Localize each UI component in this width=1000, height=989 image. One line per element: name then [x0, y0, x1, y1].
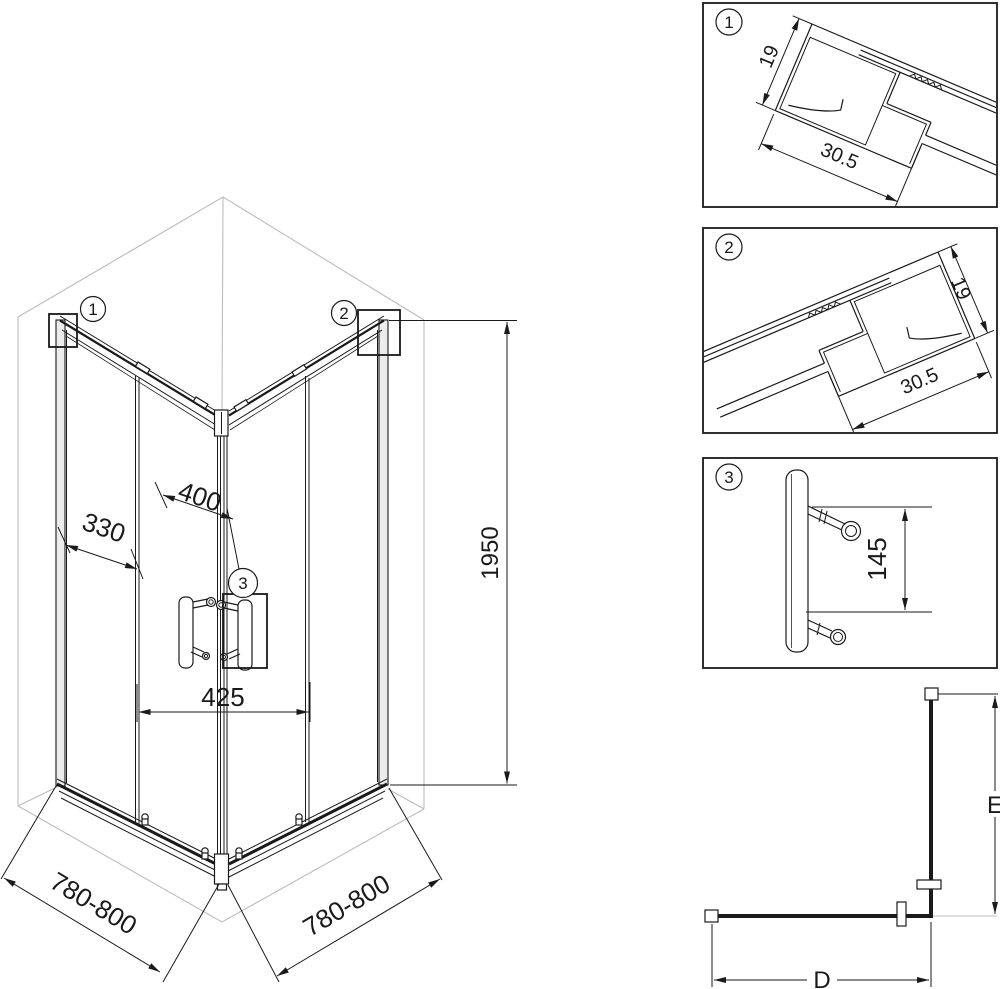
detail-2-number: 2 — [724, 238, 733, 257]
drawing-canvas: 330 400 425 1950 780-800 — [0, 0, 1000, 989]
plan-handle-front-wall — [897, 902, 906, 926]
main-isometric-view: 330 400 425 1950 780-800 — [1, 197, 517, 982]
plan-handle-right-wall — [917, 880, 941, 889]
dimension-D: D — [712, 922, 931, 989]
door-hanger — [292, 365, 307, 377]
dimension-E: E — [938, 694, 1000, 914]
detail-panel-1: 1 19 30.5 — [703, 3, 1000, 254]
dim-width-left-label: 780-800 — [45, 866, 142, 941]
callout-2-number: 2 — [339, 304, 348, 323]
detail-3-number: 3 — [724, 468, 733, 487]
dimension-400: 400 — [155, 475, 239, 569]
right-wall-profile — [378, 320, 389, 785]
wall-bracket-top — [925, 688, 938, 700]
plan-view: E D — [705, 688, 1000, 989]
dim-330-label: 330 — [79, 506, 130, 548]
dim-width-right-label: 780-800 — [298, 868, 395, 942]
dim-E-label: E — [987, 792, 1000, 819]
detail-2-border — [703, 228, 997, 433]
corner-posts — [215, 410, 229, 890]
detail-panel-3: 3 145 — [703, 458, 997, 668]
callout-1-number: 1 — [88, 300, 97, 319]
left-wall-profile — [56, 320, 67, 786]
dimension-145: 145 — [806, 507, 932, 612]
right-door-handle — [217, 600, 253, 670]
dim-425-label: 425 — [201, 682, 244, 712]
dim-145-label: 145 — [862, 537, 892, 580]
dim-1950-label: 1950 — [477, 526, 504, 579]
detail-3-border — [703, 458, 997, 668]
wall-bracket-left — [705, 910, 718, 922]
dimension-1950: 1950 — [389, 321, 517, 786]
callout-3-number: 3 — [238, 574, 247, 593]
detail-panel-2: 2 19 30.5 — [694, 228, 1000, 482]
dimension-330: 330 — [58, 506, 143, 579]
detail-1-dim-height: 19 — [755, 42, 784, 71]
detail-1-number: 1 — [724, 13, 733, 32]
door-hanger — [234, 400, 249, 412]
technical-drawing-page: 330 400 425 1950 780-800 — [0, 0, 1000, 989]
detail-3-handle — [786, 470, 861, 652]
dim-D-label: D — [813, 967, 830, 989]
detail-1-border — [703, 3, 997, 207]
left-door-handle — [179, 597, 216, 668]
detail-2-dim-height: 19 — [946, 274, 975, 303]
